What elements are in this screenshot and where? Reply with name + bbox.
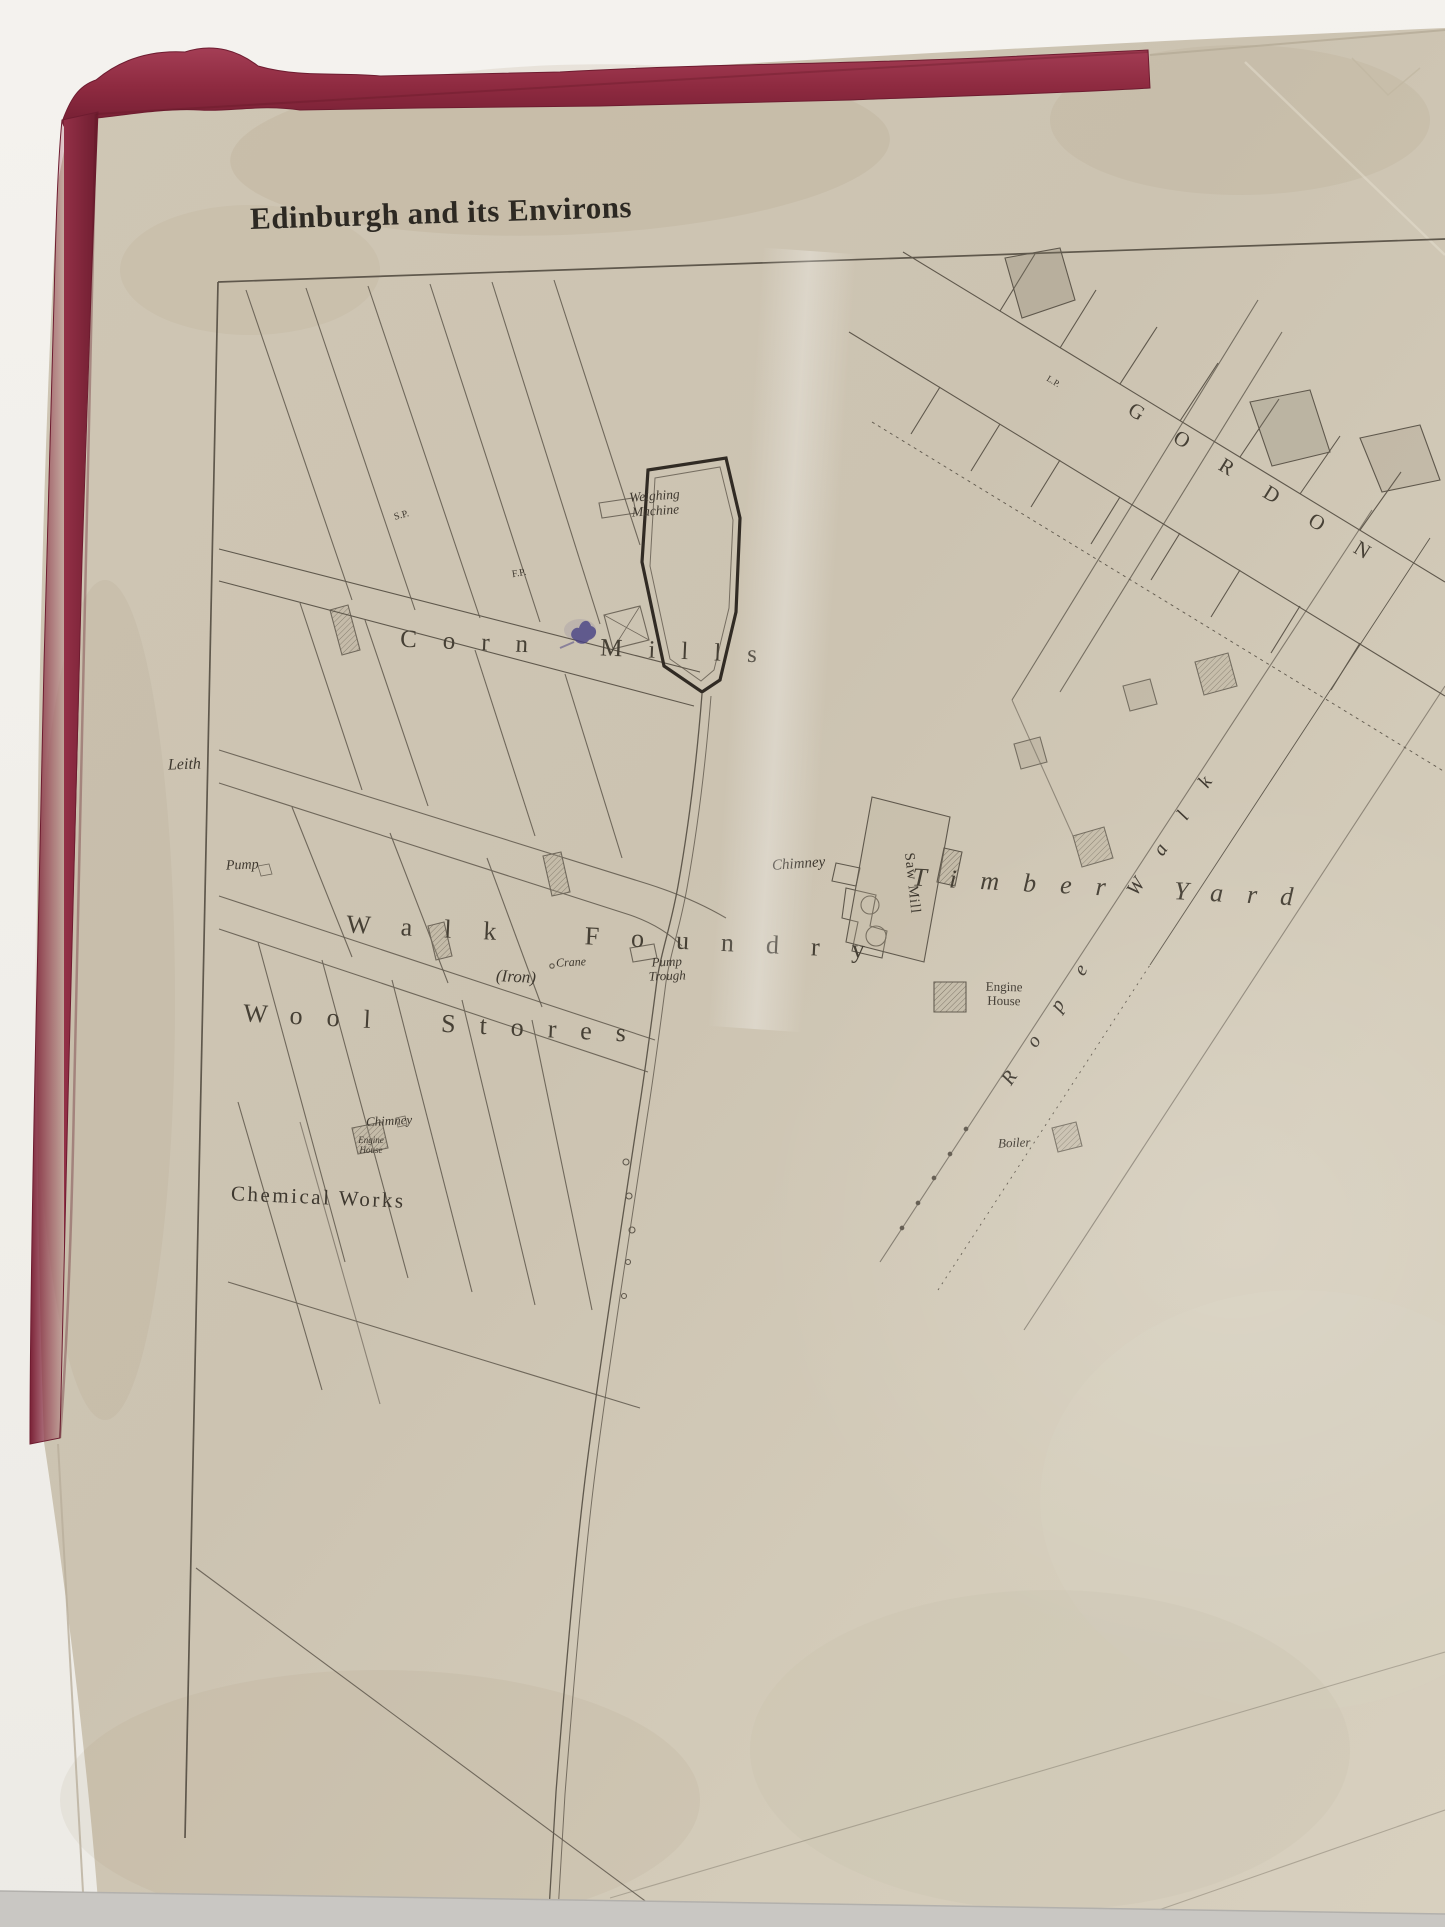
label-boiler: Boiler — [998, 1135, 1031, 1150]
framed-map-photo: Edinburgh and its Environs Leith Corn Mi… — [0, 0, 1445, 1927]
label-chimney-chemical: Chimney — [366, 1113, 413, 1130]
label-engine-house-chemical: Engine House — [350, 1136, 392, 1156]
label-leith: Leith — [168, 755, 201, 774]
label-pump-trough: Pump Trough — [638, 954, 697, 985]
label-pump: Pump — [226, 857, 259, 874]
label-weighing-machine: Weighing Machine — [611, 486, 699, 522]
label-iron: (Iron) — [496, 967, 537, 988]
map-sheet-paper — [35, 28, 1445, 1927]
label-crane: Crane — [556, 955, 587, 970]
map-sheet-rendering — [0, 0, 1445, 1927]
label-engine-house: Engine House — [972, 979, 1036, 1009]
